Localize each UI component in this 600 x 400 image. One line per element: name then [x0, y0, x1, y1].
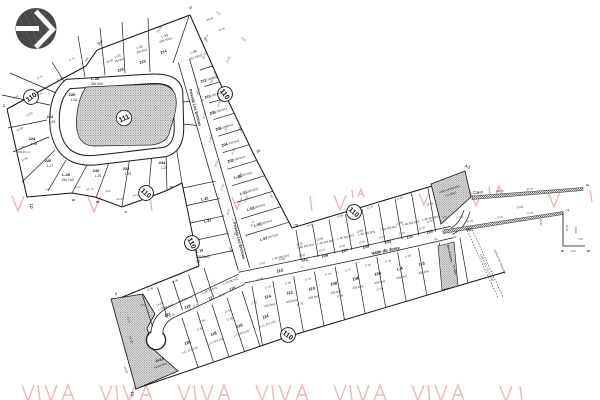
svg-text:L-24: L-24: [125, 172, 132, 176]
svg-text:26.32: 26.32: [539, 219, 543, 226]
svg-text:226: 226: [45, 158, 52, 163]
svg-text:7.10: 7.10: [577, 237, 583, 241]
svg-text:234: 234: [159, 160, 166, 165]
svg-text:65.75: 65.75: [496, 189, 504, 193]
svg-text:354.7m2: 354.7m2: [62, 178, 75, 182]
svg-text:220: 220: [69, 92, 76, 97]
svg-text:L-23: L-23: [161, 166, 168, 170]
svg-text:222: 222: [47, 114, 54, 119]
svg-text:224: 224: [29, 136, 36, 141]
svg-text:L-27: L-27: [47, 164, 54, 168]
svg-text:L-29: L-29: [49, 120, 56, 124]
svg-text:08: 08: [466, 227, 472, 232]
svg-text:L-28: L-28: [19, 145, 25, 149]
svg-text:61.70: 61.70: [86, 187, 94, 192]
svg-text:L-28: L-28: [31, 142, 38, 146]
svg-text:23.92: 23.92: [574, 227, 578, 234]
svg-text:26.32: 26.32: [565, 225, 569, 232]
svg-text:350.9m2: 350.9m2: [91, 82, 104, 86]
svg-text:230: 230: [93, 168, 100, 173]
svg-text:L-26: L-26: [62, 172, 71, 177]
svg-text:10: 10: [29, 203, 34, 209]
svg-text:65.75: 65.75: [527, 187, 534, 191]
svg-text:L-25: L-25: [95, 174, 102, 178]
svg-text:456.43 m2: 456.43 m2: [18, 150, 31, 154]
svg-text:L-30: L-30: [71, 98, 78, 102]
svg-text:10: 10: [130, 391, 135, 397]
svg-text:8.07: 8.07: [140, 303, 146, 307]
svg-text:232: 232: [123, 166, 130, 171]
svg-text:2.12: 2.12: [570, 249, 576, 253]
svg-text:46.02: 46.02: [477, 190, 484, 194]
svg-text:353.94m2: 353.94m2: [196, 255, 210, 259]
svg-text:L-30: L-30: [91, 76, 100, 81]
